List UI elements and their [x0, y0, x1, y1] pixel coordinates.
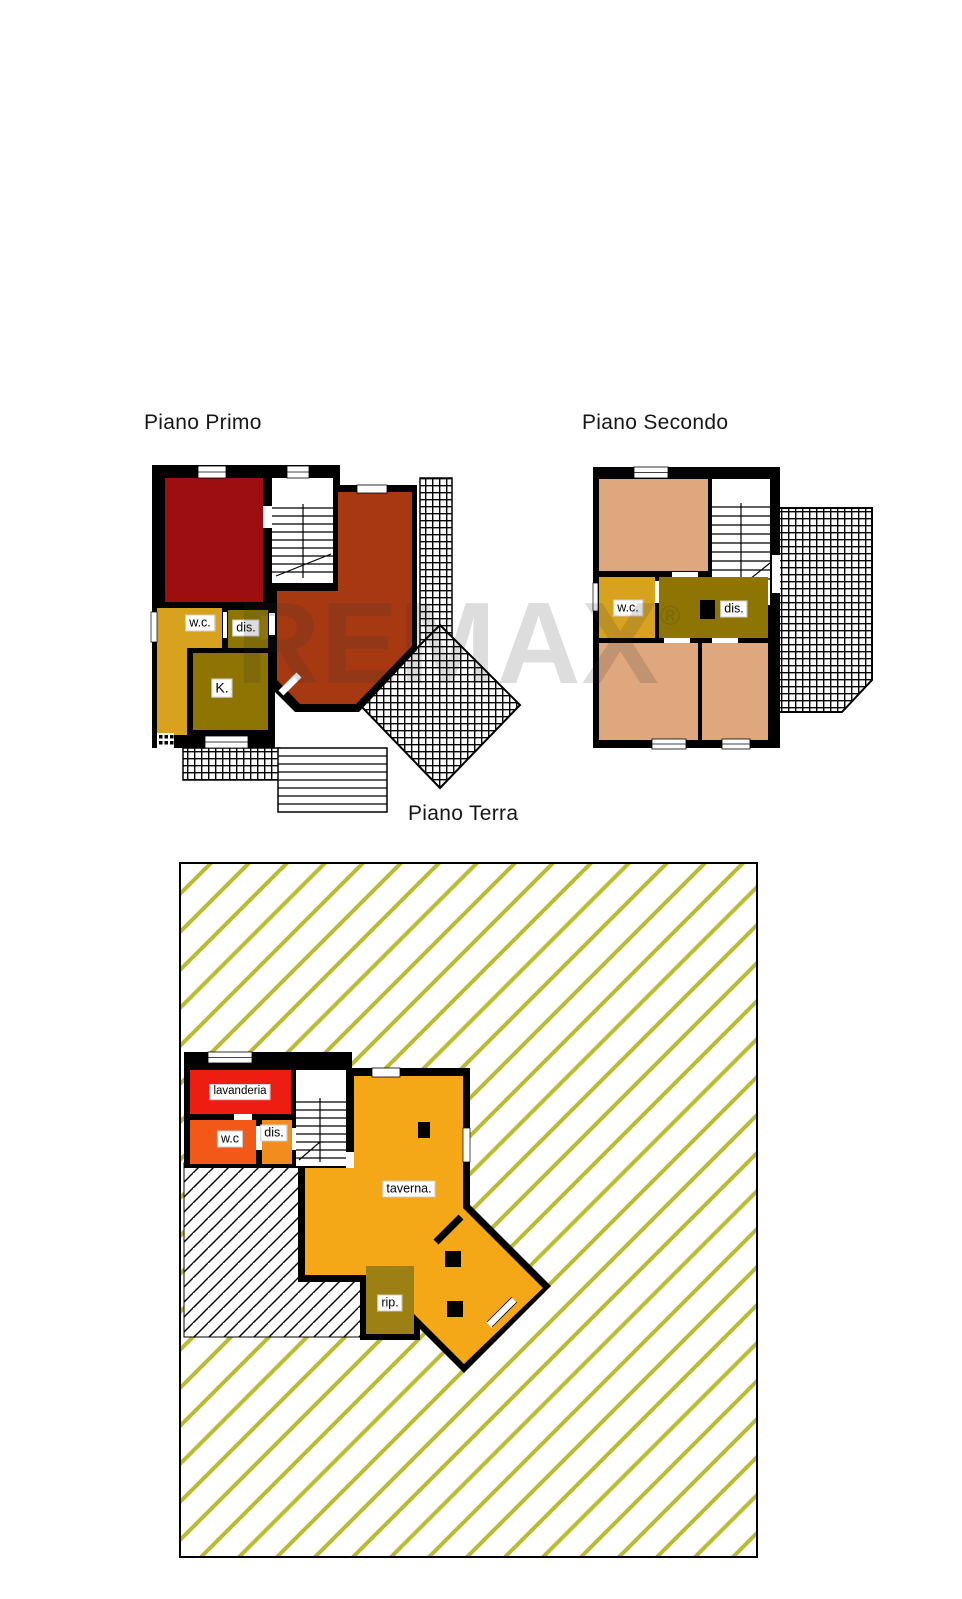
- label-secondo-dis: dis.: [720, 601, 747, 618]
- piano-primo-floorplan: [145, 450, 545, 820]
- piano-primo-stairwell: [272, 478, 333, 583]
- room-soggiorno: [165, 478, 263, 602]
- label-terra-taverna: taverna.: [382, 1181, 435, 1198]
- terrace-grid-bottom: [183, 748, 280, 780]
- room-camera-1: [599, 479, 708, 571]
- piano-terra-stairwell: [296, 1070, 346, 1166]
- piano-secondo-title: Piano Secondo: [582, 411, 728, 435]
- label-terra-lavanderia: lavanderia: [209, 1084, 270, 1100]
- room-camera-2: [599, 643, 698, 740]
- piano-terra-title: Piano Terra: [408, 802, 518, 826]
- label-primo-dis: dis.: [232, 620, 259, 637]
- label-secondo-wc: w.c.: [613, 600, 643, 617]
- balcony-grid: [777, 508, 872, 712]
- piano-primo-title: Piano Primo: [144, 411, 262, 435]
- shaft: [700, 600, 715, 619]
- floorplan-sheet: Piano Primo: [0, 0, 962, 1599]
- label-terra-dis: dis.: [260, 1125, 287, 1142]
- piano-terra-floorplan: [178, 858, 762, 1560]
- exterior-staircase: [278, 748, 387, 812]
- wall-vent-dots: [157, 733, 174, 748]
- label-primo-wc: w.c.: [185, 615, 215, 632]
- label-primo-k: K.: [211, 679, 232, 698]
- room-camera-3: [702, 643, 768, 740]
- label-terra-wc: w.c: [217, 1131, 243, 1148]
- label-terra-rip: rip.: [377, 1295, 402, 1312]
